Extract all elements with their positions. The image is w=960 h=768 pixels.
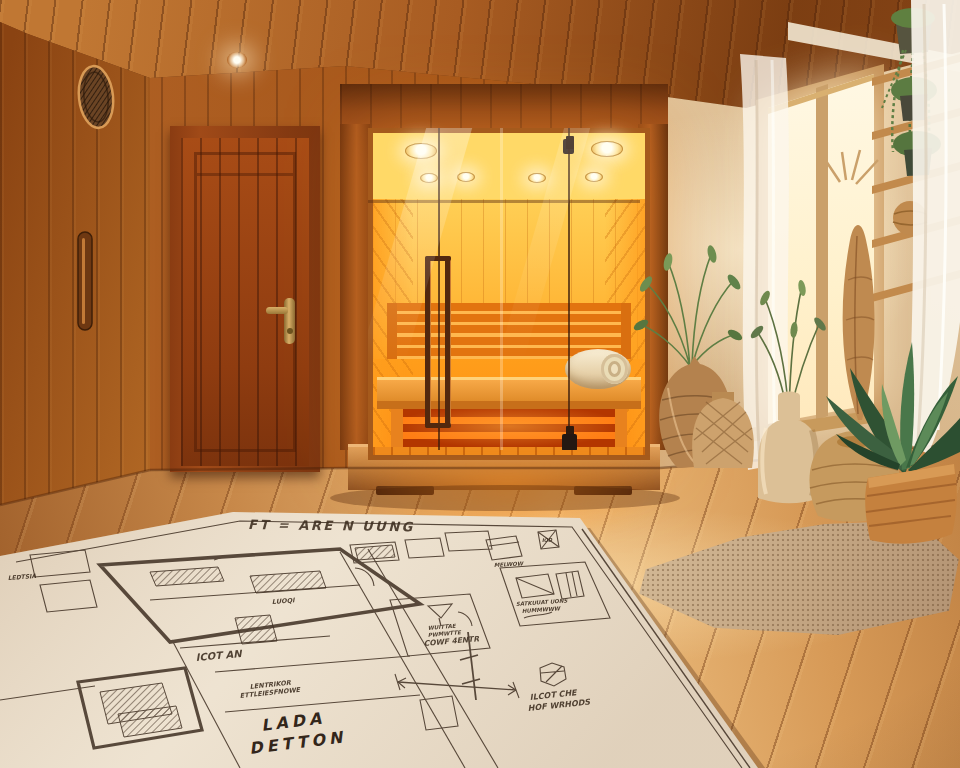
interior-door [170, 126, 320, 472]
sauna-left-post [340, 124, 370, 450]
door-slab [181, 138, 309, 466]
sauna-door-handle [445, 256, 451, 428]
glass-glare [472, 128, 590, 450]
door-handle-lever [266, 307, 288, 314]
handle-cap [425, 423, 451, 428]
sauna-top-frame [340, 84, 668, 130]
door-panel [194, 152, 296, 452]
door-handle [284, 298, 295, 344]
sauna-floor-glow [348, 466, 668, 550]
glass-glare [368, 128, 472, 450]
sauna-room-scene: FT = ARE N UUNG LEDTSIA LUOQI ICOT AN LE… [0, 0, 960, 768]
ceiling-spotlight [227, 52, 247, 68]
sauna-control-box [562, 434, 577, 450]
sauna-cabin [340, 84, 668, 496]
sauna-glass-doors [368, 128, 640, 450]
door-keyhole [287, 328, 293, 334]
